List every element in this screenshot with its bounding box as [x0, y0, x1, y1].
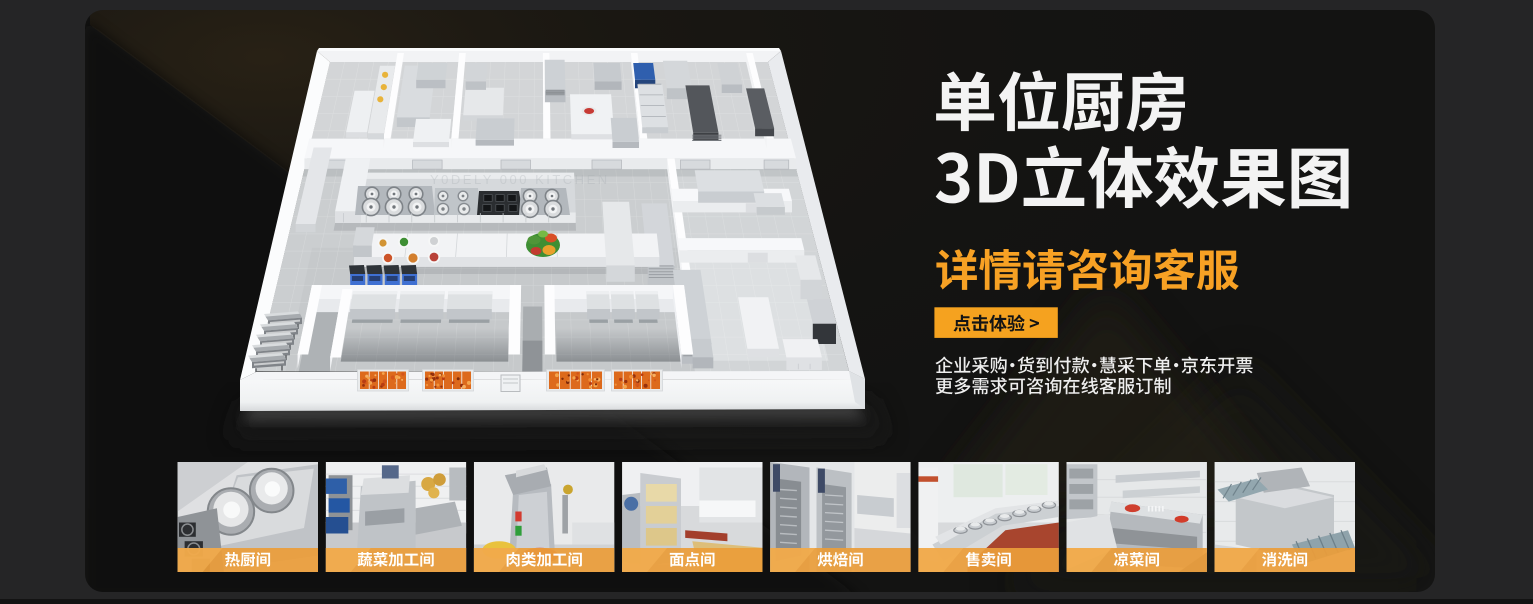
- svg-text:Y0DELY 000 KITCHEN: Y0DELY 000 KITCHEN: [430, 172, 610, 187]
